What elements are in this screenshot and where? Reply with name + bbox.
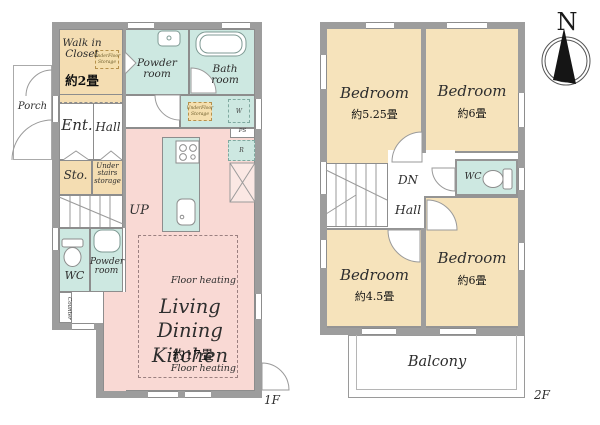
bedroom-3-size: 約4.5畳 xyxy=(327,291,422,303)
floor-plan-canvas: Porch PS R W UnderFloor Storage Und xyxy=(0,0,600,425)
compass-north-label: N xyxy=(557,8,578,36)
door-arc xyxy=(388,230,420,262)
door-arc xyxy=(392,132,422,162)
bedroom-2-size: 約6畳 xyxy=(426,108,518,120)
wc-label-2f: WC xyxy=(461,172,485,182)
bedroom-4-size: 約6畳 xyxy=(426,275,518,287)
dn-label: DN xyxy=(392,174,424,187)
floor-label-2f: 2F xyxy=(529,389,555,402)
stairs-icon xyxy=(326,164,387,226)
hall-label-2f: Hall xyxy=(390,203,426,216)
fixtures-2f: N xyxy=(0,0,600,425)
bedroom-2-label: Bedroom xyxy=(426,84,518,100)
bedroom-1-label: Bedroom xyxy=(327,86,422,102)
bedroom-4-label: Bedroom xyxy=(426,251,518,267)
toilet-icon xyxy=(483,169,512,189)
bedroom-1-size: 約5.25畳 xyxy=(327,109,422,121)
compass-needle xyxy=(553,28,576,84)
door-arc xyxy=(427,200,457,230)
door-arc xyxy=(432,168,455,191)
balcony-label: Balcony xyxy=(393,355,481,370)
bedroom-3-label: Bedroom xyxy=(327,268,422,284)
compass-icon: N xyxy=(542,8,590,85)
